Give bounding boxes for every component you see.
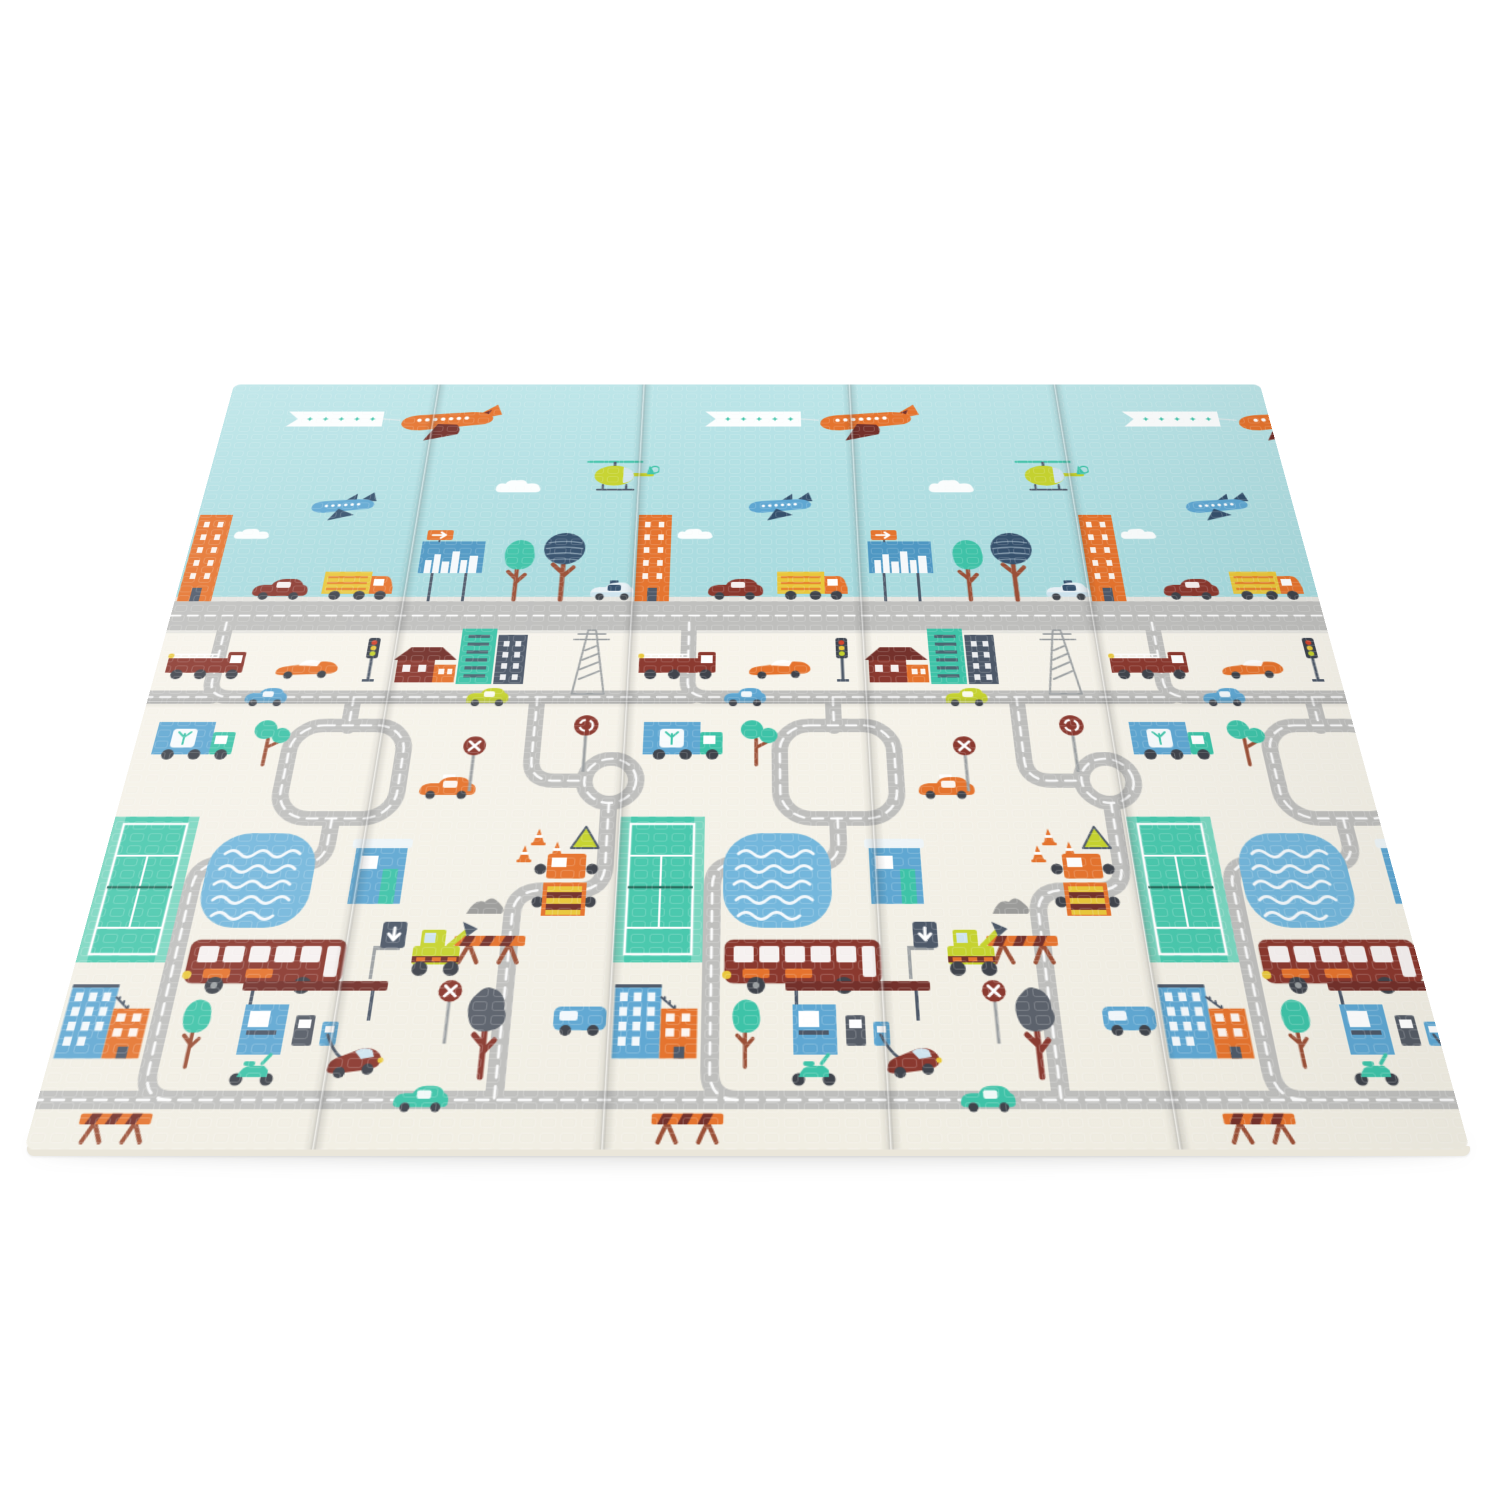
mat-artwork bbox=[24, 385, 1469, 1150]
light-sheen bbox=[24, 385, 1469, 1150]
baby-play-mat bbox=[24, 385, 1469, 1150]
product-photo-stage bbox=[0, 0, 1500, 1500]
